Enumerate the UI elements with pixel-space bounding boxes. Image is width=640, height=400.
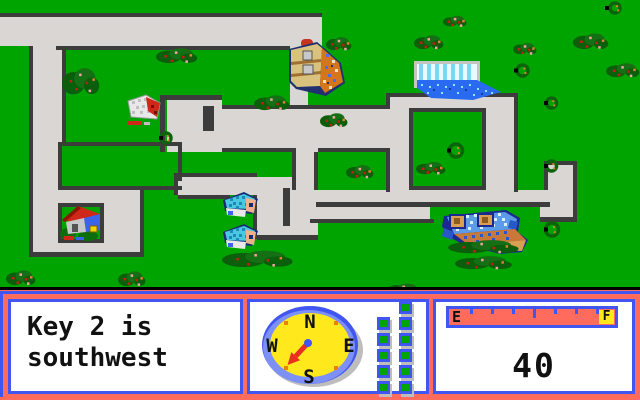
compass-east-label: E [343, 335, 354, 357]
compass-north-label: N [304, 311, 315, 333]
berry-bush [443, 12, 467, 25]
berry-bush [573, 31, 609, 50]
gear-square [377, 317, 390, 330]
road-edge [29, 252, 144, 257]
compass-pivot [304, 339, 312, 347]
berry-bush [513, 40, 537, 54]
message-panel: Key 2 is southwest [8, 299, 243, 394]
gear-square [399, 365, 412, 378]
road-edge [174, 173, 257, 177]
road-edge [0, 13, 322, 17]
road-edge [409, 186, 486, 190]
berry-bush [388, 279, 420, 287]
road-edge [316, 202, 550, 207]
fuel-gauge: E F [446, 306, 618, 328]
berry-bush [455, 254, 513, 270]
compass-west-label: W [266, 335, 278, 357]
round-bush [513, 63, 532, 78]
compass-south-label: S [303, 366, 314, 388]
road-edge [314, 152, 318, 190]
berry-bush [320, 111, 348, 128]
round-bush [543, 158, 560, 172]
road-edge [283, 188, 290, 226]
berry-bush [254, 93, 290, 111]
road-edge [310, 219, 434, 223]
berry-bush [414, 33, 444, 50]
fuel-tick [491, 309, 494, 314]
road-edge [292, 152, 296, 190]
round-bush [543, 95, 560, 109]
round-bush [604, 0, 626, 14]
fuel-full-label: F [599, 310, 614, 324]
road-edge [203, 106, 214, 131]
fuel-panel: E F 40 [433, 299, 635, 394]
compass-icon: N E S W [250, 302, 385, 391]
red-roof-house-sprite [58, 202, 106, 244]
gear-indicator [377, 302, 427, 391]
game-screen: Key 2 is southwest N E S W [0, 0, 640, 400]
small-house-sprite [126, 93, 166, 127]
pool-building-sprite [413, 60, 505, 104]
gear-square [377, 349, 390, 362]
hud: Key 2 is southwest N E S W [0, 290, 640, 400]
berry-bush [62, 64, 100, 96]
hud-frame-left [0, 291, 3, 397]
berry-bush [606, 61, 640, 78]
round-bush [446, 142, 466, 159]
road-edge [222, 148, 296, 152]
gear-square [399, 381, 412, 394]
road-edge [160, 95, 222, 100]
berry-bush [222, 248, 294, 268]
road-edge [58, 186, 182, 190]
road-segment [482, 112, 514, 192]
road-edge [174, 173, 178, 195]
fuel-tick [596, 309, 599, 314]
speed-value: 40 [436, 346, 632, 385]
berry-bush [448, 238, 520, 254]
berry-bush [6, 268, 36, 286]
road-edge [482, 108, 486, 190]
compass-panel: N E S W [247, 299, 429, 394]
gear-square [377, 365, 390, 378]
road-edge [386, 152, 390, 192]
berry-bush [118, 269, 146, 287]
message-text: Key 2 is southwest [11, 302, 240, 374]
road-edge [257, 235, 318, 240]
road-edge [29, 46, 33, 257]
fuel-empty-label: E [452, 308, 461, 326]
gear-square [399, 317, 412, 330]
road-edge [318, 148, 390, 152]
road-edge [58, 142, 62, 190]
gear-square [377, 381, 390, 394]
road-edge [222, 105, 390, 109]
gear-square [399, 333, 412, 346]
fuel-tick [533, 309, 536, 318]
road-edge [409, 108, 486, 112]
berry-bush [156, 46, 198, 64]
message-line-1: Key 2 is [11, 312, 240, 343]
map-view[interactable] [0, 0, 640, 287]
berry-bush [346, 163, 374, 179]
round-bush [543, 221, 561, 238]
round-bush [158, 130, 174, 144]
road-edge [386, 93, 390, 109]
hud-frame-top [0, 291, 640, 294]
gear-square [399, 349, 412, 362]
gear-square [377, 333, 390, 346]
road-edge [409, 108, 413, 190]
fuel-tick [554, 309, 557, 314]
message-line-2: southwest [11, 343, 240, 374]
berry-bush [416, 160, 446, 175]
fuel-tick [575, 309, 578, 314]
road-edge [573, 161, 577, 220]
gear-square [399, 301, 412, 314]
fuel-tick [512, 309, 515, 314]
fuel-tick [470, 309, 473, 314]
cyan-house-1-sprite [222, 190, 262, 222]
road-edge [140, 190, 144, 252]
road-edge [514, 93, 518, 192]
berry-bush [326, 35, 352, 51]
